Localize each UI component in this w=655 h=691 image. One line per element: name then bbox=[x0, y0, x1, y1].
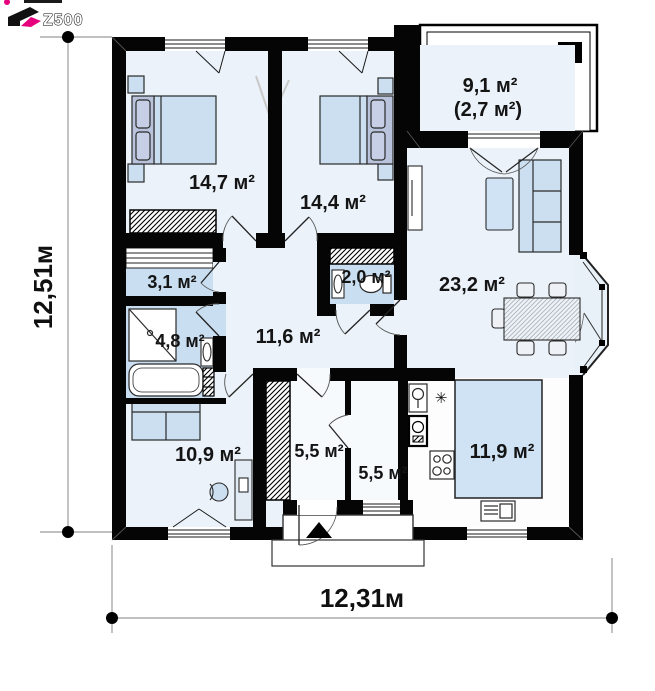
chair bbox=[549, 283, 566, 297]
office-sofa bbox=[132, 402, 200, 440]
label-hallway: 11,6 м² bbox=[256, 326, 321, 348]
wardrobe-hatch-vestibule bbox=[266, 381, 290, 500]
label-kitchen: 11,9 м² bbox=[470, 441, 535, 463]
label-terrace-area: 9,1 м² bbox=[463, 75, 518, 97]
label-terrace-area2: (2,7 м²) bbox=[454, 99, 522, 121]
floor-plan-canvas: Z500 12,51м 12,31м bbox=[0, 0, 655, 691]
bathtub bbox=[129, 364, 203, 396]
hob-symbol: ✳ bbox=[435, 389, 448, 407]
nightstand bbox=[128, 76, 144, 93]
width-dimension-label: 12,31м bbox=[320, 583, 404, 613]
floor-plan-page: Z500 12,51м 12,31м bbox=[0, 0, 655, 691]
label-bedroom1: 14,7 м² bbox=[189, 172, 255, 194]
nightstand bbox=[378, 78, 393, 94]
kitchen-sink bbox=[409, 416, 427, 446]
chair bbox=[549, 341, 566, 355]
coffee-table bbox=[486, 178, 513, 230]
label-bedroom2: 14,4 м² bbox=[300, 192, 366, 214]
dimension-dot bbox=[62, 526, 74, 538]
label-office: 10,9 м² bbox=[175, 444, 241, 466]
nightstand bbox=[378, 164, 393, 180]
towel-unit bbox=[203, 368, 214, 396]
logo-clipped-fragment bbox=[24, 0, 62, 3]
label-wardrobe: 3,1 м² bbox=[147, 272, 196, 292]
chair bbox=[517, 283, 534, 297]
label-living: 23,2 м² bbox=[439, 274, 505, 296]
dimension-dot bbox=[106, 612, 118, 624]
label-bathroom: 4,8 м² bbox=[155, 331, 204, 351]
window-kitchen bbox=[467, 527, 527, 540]
stove bbox=[430, 451, 454, 479]
label-wc: 2,0 м² bbox=[341, 267, 390, 287]
chair bbox=[517, 341, 534, 355]
office-chair bbox=[210, 483, 228, 501]
entrance-porch bbox=[272, 515, 424, 566]
dimension-dot bbox=[62, 31, 74, 43]
kitchen-boiler bbox=[409, 384, 427, 412]
nightstand bbox=[128, 164, 144, 182]
dining-table bbox=[504, 298, 580, 340]
kitchen-blue-zone bbox=[455, 380, 542, 498]
tv-cabinet bbox=[408, 166, 422, 230]
dimension-dot bbox=[606, 612, 618, 624]
wardrobe-hatch-bedroom1 bbox=[130, 210, 216, 233]
sofa bbox=[519, 160, 561, 252]
height-dimension-label: 12,51м bbox=[28, 245, 58, 329]
chair bbox=[492, 309, 505, 328]
label-vestibule: 5,5 м² bbox=[294, 441, 343, 461]
label-utility: 5,5 м² bbox=[358, 463, 407, 483]
brand-text: Z500 bbox=[43, 12, 83, 29]
wardrobe-shelves bbox=[126, 248, 213, 268]
wardrobe-hatch-wc bbox=[330, 248, 394, 264]
office-desk bbox=[235, 460, 252, 520]
oven-appliance bbox=[481, 501, 515, 521]
